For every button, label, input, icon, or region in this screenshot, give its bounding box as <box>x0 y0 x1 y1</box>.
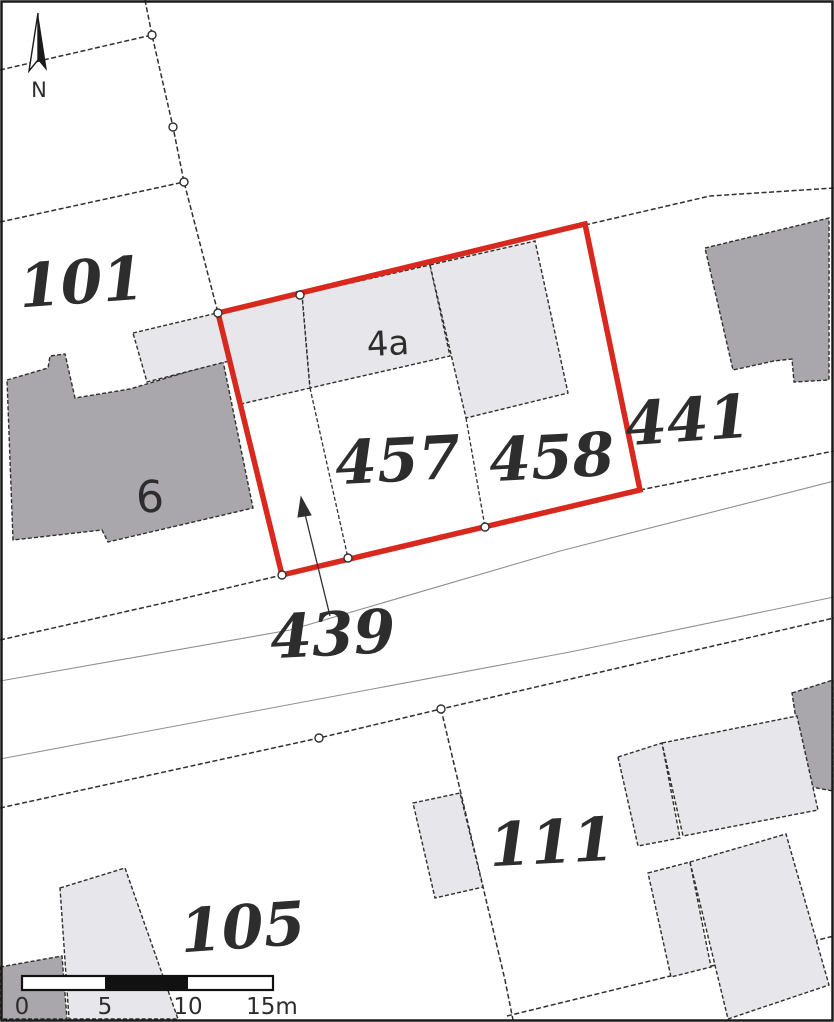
boundary-point <box>180 178 188 186</box>
scale-bar-black-segment <box>105 976 188 990</box>
boundary-point <box>437 705 445 713</box>
scale-label-0: 0 <box>15 994 30 1020</box>
parcel-label-439: 439 <box>268 597 397 673</box>
building-large-inside-plot <box>430 241 568 418</box>
road-edge <box>0 575 282 640</box>
house-label-4a: 4a <box>366 323 411 365</box>
building <box>690 834 829 1019</box>
parcel-label-101: 101 <box>17 244 147 323</box>
parcel-label-458: 458 <box>487 420 616 496</box>
boundary-point <box>214 309 222 317</box>
parcel-boundary <box>0 35 152 70</box>
north-arrow-left-half <box>29 13 38 71</box>
north-arrow-icon: N <box>29 13 47 102</box>
parcel-label-111: 111 <box>487 805 616 881</box>
scale-label-5: 5 <box>98 994 113 1020</box>
building <box>60 868 178 1019</box>
boundary-point <box>344 554 352 562</box>
building <box>413 793 483 898</box>
building-house-6 <box>7 354 253 542</box>
scale-label-15m: 15m <box>246 994 298 1020</box>
house-label-6: 6 <box>135 471 166 523</box>
boundary-point <box>481 523 489 531</box>
parcel-label-105: 105 <box>178 889 308 968</box>
cadastral-map: N 0 5 10 15m 101 441 457 458 439 111 105… <box>0 0 834 1022</box>
parcel-boundary <box>0 182 184 222</box>
boundary-point <box>278 571 286 579</box>
boundary-point <box>296 291 304 299</box>
building-dark-top-right <box>705 218 829 382</box>
boundary-point <box>169 123 177 131</box>
parcel-label-441: 441 <box>623 382 753 461</box>
parcel-label-457: 457 <box>333 423 462 499</box>
label-leader-arrow <box>298 497 330 616</box>
north-label: N <box>31 78 47 102</box>
division-457-458 <box>466 418 485 527</box>
boundary-point <box>315 734 323 742</box>
building <box>662 716 818 836</box>
boundary-point <box>148 31 156 39</box>
north-arrow-right-half <box>38 13 47 71</box>
arrowhead-icon <box>298 497 311 517</box>
scale-label-10: 10 <box>173 994 202 1020</box>
light-buildings <box>60 241 829 1019</box>
parcel-boundary <box>585 188 834 225</box>
parcel-boundary <box>145 0 218 313</box>
